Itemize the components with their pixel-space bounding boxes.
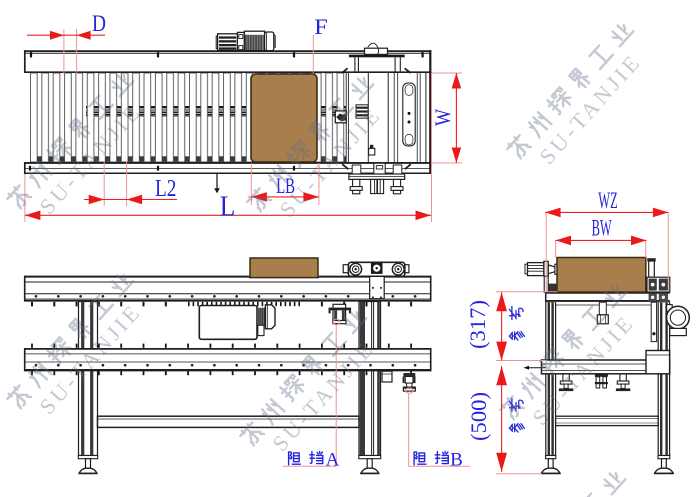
svg-text:F: F — [314, 14, 328, 39]
svg-text:D: D — [92, 11, 106, 36]
svg-text:L: L — [220, 192, 236, 223]
svg-text:W: W — [430, 109, 455, 126]
svg-text:(500): (500) — [466, 392, 491, 441]
svg-text:L2: L2 — [155, 175, 177, 202]
svg-text:WZ: WZ — [598, 188, 618, 213]
svg-text:(317): (317) — [465, 300, 490, 349]
svg-text:B: B — [450, 450, 463, 471]
svg-text:BW: BW — [592, 216, 612, 241]
svg-text:A: A — [326, 450, 340, 471]
